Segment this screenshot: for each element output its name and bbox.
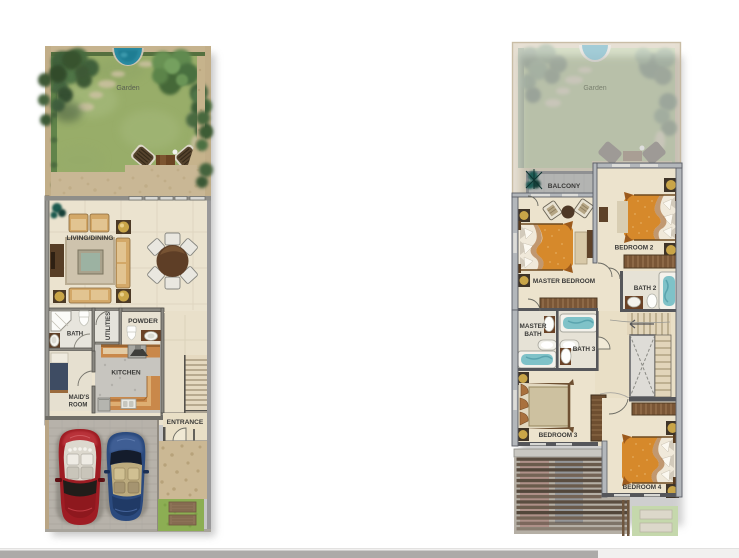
svg-text:ENTRANCE: ENTRANCE <box>167 419 204 426</box>
svg-text:KITCHEN: KITCHEN <box>111 370 141 377</box>
svg-text:BALCONY: BALCONY <box>548 183 581 190</box>
svg-text:MASTER: MASTER <box>520 323 547 330</box>
svg-text:BATH 2: BATH 2 <box>634 285 657 292</box>
svg-text:POWDER: POWDER <box>128 318 158 325</box>
svg-text:BATH 3: BATH 3 <box>573 346 596 353</box>
svg-text:MASTER BEDROOM: MASTER BEDROOM <box>533 278 595 285</box>
svg-text:Garden: Garden <box>116 85 139 92</box>
svg-text:LIVING/DINING: LIVING/DINING <box>67 235 114 242</box>
svg-text:BEDROOM 4: BEDROOM 4 <box>623 484 662 491</box>
svg-text:UTILITIES: UTILITIES <box>106 312 112 340</box>
svg-text:Garden: Garden <box>583 85 606 92</box>
svg-text:BATH: BATH <box>524 331 542 338</box>
svg-text:BEDROOM 2: BEDROOM 2 <box>615 245 654 252</box>
svg-text:BEDROOM 3: BEDROOM 3 <box>539 432 578 439</box>
svg-text:ROOM: ROOM <box>69 403 88 409</box>
svg-text:MAID'S: MAID'S <box>69 395 90 401</box>
